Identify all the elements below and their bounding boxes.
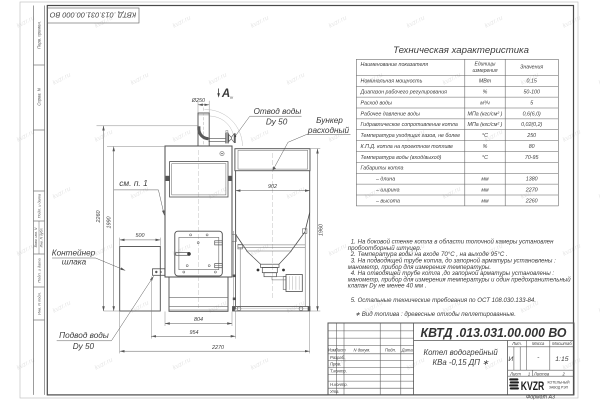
svg-text:KVZR: KVZR: [521, 379, 545, 393]
svg-text:1:15: 1:15: [555, 356, 568, 363]
svg-text:А: А: [221, 88, 230, 100]
svg-text:902: 902: [268, 184, 277, 190]
svg-text:Гидравлическое сопротивление к: Гидравлическое сопротивление котла: [361, 122, 458, 128]
svg-text:Отвод воды: Отвод воды: [253, 107, 301, 116]
svg-text:Перв. примен.: Перв. примен.: [37, 21, 42, 49]
svg-text:0,15: 0,15: [527, 79, 537, 85]
svg-text:0,02(0,2): 0,02(0,2): [521, 122, 542, 128]
svg-text:500: 500: [136, 233, 145, 239]
svg-text:Подп.: Подп.: [385, 347, 396, 352]
svg-text:– ширина: – ширина: [375, 187, 400, 193]
svg-text:%: %: [483, 90, 488, 96]
svg-text:расходный: расходный: [307, 126, 350, 135]
svg-text:Номинальная мощность: Номинальная мощность: [361, 79, 423, 85]
svg-text:Лист: Лист: [509, 371, 521, 376]
svg-text:МВт: МВт: [479, 79, 492, 85]
svg-text:804: 804: [194, 317, 203, 323]
svg-text:Масштаб: Масштаб: [552, 341, 572, 346]
svg-text:МПа (кгс/см² ): МПа (кгс/см² ): [468, 122, 503, 128]
svg-text:Dy 50: Dy 50: [73, 342, 95, 351]
svg-text:1: 1: [528, 371, 530, 376]
svg-text:0,6(6,0): 0,6(6,0): [523, 111, 541, 117]
svg-text:мм: мм: [481, 187, 489, 193]
svg-text:Взам. инв. N: Взам. инв. N: [34, 227, 38, 247]
svg-text:1380: 1380: [526, 177, 538, 183]
svg-text:∗ Вид топлива : древесные от: ∗ Вид топлива : древесные отходы пеллети…: [355, 311, 516, 318]
svg-text:см. п. 1: см. п. 1: [119, 178, 148, 188]
svg-text:Дата: Дата: [401, 347, 414, 352]
svg-text:КВТД .013.031.00.000 ВО: КВТД .013.031.00.000 ВО: [50, 11, 137, 20]
svg-text:Температура воды (вход/выход): Температура воды (вход/выход): [361, 155, 442, 161]
svg-text:2270: 2270: [525, 187, 538, 193]
svg-text:%: %: [483, 144, 488, 150]
svg-text:Техническая характеристика: Техническая характеристика: [393, 45, 529, 56]
svg-text:1990: 1990: [107, 217, 113, 229]
svg-text:МПа (кгс/см² ): МПа (кгс/см² ): [468, 111, 503, 117]
svg-text:мм: мм: [481, 198, 489, 204]
svg-text:Dy 50: Dy 50: [266, 118, 288, 127]
svg-text:И: И: [508, 356, 513, 363]
svg-text:Утв.: Утв.: [330, 389, 340, 394]
svg-text:Габариты котла: Габариты котла: [361, 166, 404, 172]
svg-text:Единицы: Единицы: [475, 61, 496, 67]
svg-text:70-95: 70-95: [525, 155, 539, 161]
svg-text:Бункер: Бункер: [316, 116, 343, 125]
svg-text:Лист: Лист: [334, 347, 346, 352]
svg-text:Формат А3: Формат А3: [526, 395, 555, 400]
svg-text:КВТД .013.031.00.000 ВО: КВТД .013.031.00.000 ВО: [421, 326, 567, 340]
svg-text:Справ. N: Справ. N: [37, 87, 42, 105]
svg-text:– высота: – высота: [375, 198, 400, 204]
svg-text:Инв. N подл.: Инв. N подл.: [37, 292, 42, 315]
svg-text:Диапазон рабочего регулировани: Диапазон рабочего регулирования: [360, 90, 448, 96]
svg-text:КОТЕЛЬНЫЙ: КОТЕЛЬНЫЙ: [548, 380, 570, 384]
svg-text:измерения: измерения: [472, 68, 497, 74]
svg-text:Контейнер: Контейнер: [52, 248, 96, 257]
svg-text:5: 5: [530, 100, 533, 106]
svg-text:°С: °С: [482, 133, 488, 139]
svg-text:80: 80: [529, 144, 535, 150]
svg-text:Температура уходящих газов, не: Температура уходящих газов, не более: [361, 133, 461, 139]
svg-text:5. Остальные технические треб: 5. Остальные технические требования по О…: [351, 297, 536, 304]
svg-text:Значения: Значения: [520, 65, 543, 71]
svg-text:Расход воды: Расход воды: [361, 100, 392, 106]
svg-text:м³/ч: м³/ч: [480, 100, 490, 106]
svg-text:мм: мм: [481, 177, 489, 183]
svg-text:Котел водогрейный: Котел водогрейный: [424, 348, 499, 357]
svg-text:50-100: 50-100: [523, 90, 540, 96]
svg-text:2260: 2260: [525, 198, 538, 204]
svg-text:250: 250: [526, 133, 536, 139]
svg-text:Листов: Листов: [533, 371, 550, 376]
svg-text:– длина: – длина: [375, 177, 395, 183]
svg-text:Подп. и дата: Подп. и дата: [37, 257, 42, 282]
svg-text:Рабочее давление воды: Рабочее давление воды: [361, 111, 420, 117]
svg-text:1960: 1960: [318, 224, 324, 236]
svg-text:Лит.: Лит.: [511, 341, 522, 346]
svg-text:Т.контр.: Т.контр.: [330, 368, 347, 373]
svg-text:2260: 2260: [96, 211, 102, 224]
svg-text:954: 954: [190, 330, 199, 336]
svg-text:Наименование показателя: Наименование показателя: [361, 62, 429, 68]
svg-text:Подвод воды: Подвод воды: [59, 331, 109, 340]
svg-text:Инв. N дубл.: Инв. N дубл.: [40, 228, 44, 248]
svg-text:К.П.Д. котла на проектном топл: К.П.Д. котла на проектном топливе: [361, 144, 454, 150]
svg-text:N докум.: N докум.: [354, 347, 371, 352]
svg-text:Н.контр.: Н.контр.: [330, 382, 348, 387]
svg-text:Разраб.: Разраб.: [330, 355, 345, 360]
svg-text:Масса: Масса: [532, 341, 545, 346]
svg-text:ЗАВОД РЭП: ЗАВОД РЭП: [549, 386, 568, 390]
svg-text:2270: 2270: [211, 345, 224, 351]
svg-text:Подп. и дата: Подп. и дата: [37, 193, 42, 218]
svg-text:клапан Dу не менее 40 мм .: клапан Dу не менее 40 мм .: [348, 283, 427, 290]
svg-text:Пров.: Пров.: [330, 362, 341, 367]
svg-text:Ø250: Ø250: [191, 98, 205, 104]
svg-text:КВа -0,15 ДП ∗: КВа -0,15 ДП ∗: [433, 358, 490, 367]
svg-text:°С: °С: [482, 155, 488, 161]
svg-text:шлака: шлака: [62, 257, 87, 266]
